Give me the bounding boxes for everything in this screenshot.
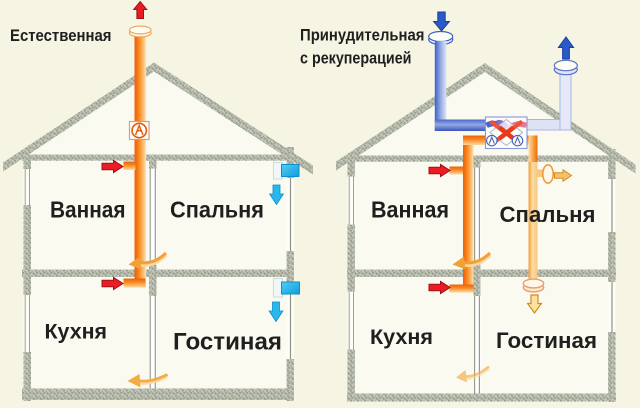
svg-text:Гостиная: Гостиная xyxy=(173,329,282,356)
svg-text:Гостиная: Гостиная xyxy=(496,328,597,353)
svg-text:Ванная: Ванная xyxy=(371,197,449,223)
svg-text:Спальня: Спальня xyxy=(170,197,264,223)
svg-text:Естественная: Естественная xyxy=(10,26,112,45)
svg-text:Кухня: Кухня xyxy=(370,325,433,349)
svg-text:Спальня: Спальня xyxy=(500,202,596,227)
svg-text:с рекуперацией: с рекуперацией xyxy=(300,50,412,68)
svg-text:Принудительная: Принудительная xyxy=(300,27,425,45)
svg-text:Ванная: Ванная xyxy=(50,197,126,223)
svg-text:Кухня: Кухня xyxy=(45,320,108,344)
